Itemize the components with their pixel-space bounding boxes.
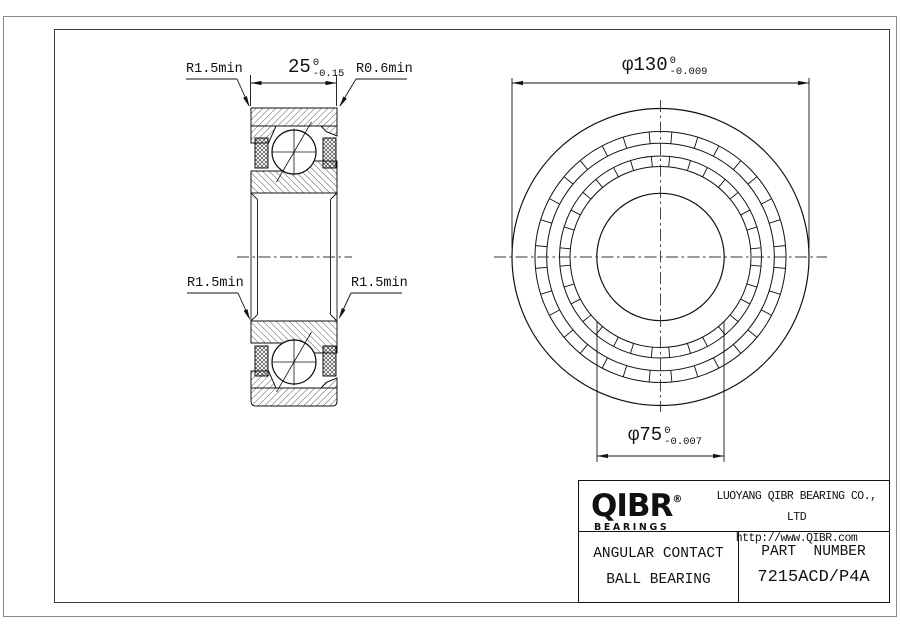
- radius-label-top-left: R1.5min: [186, 63, 243, 77]
- dimension-width: 25 0 -0.15: [288, 57, 344, 80]
- cage-bottom-right: [323, 346, 336, 376]
- cage-top-left: [255, 138, 268, 168]
- radius-label-mid-right: R1.5min: [351, 277, 408, 291]
- dimension-bore-value: φ75: [628, 425, 662, 445]
- front-view: [494, 100, 827, 412]
- dimension-bore-diameter: φ75 0 -0.007: [628, 425, 702, 448]
- radius-label-top-right: R0.6min: [356, 63, 413, 77]
- outer-ring-bottom: [251, 388, 337, 406]
- logo-wordmark: QIBR®: [591, 485, 682, 521]
- outer-ring-top: [251, 108, 337, 126]
- dimension-width-tolerance: 0 -0.15: [313, 57, 345, 80]
- part-number-value: 7215ACD/P4A: [738, 564, 889, 591]
- cage-top-right: [323, 138, 336, 168]
- outer-ring-bottom-right-step: [321, 378, 337, 388]
- title-block-header-row: QIBR® BEARINGS LUOYANG QIBR BEARING CO.,…: [579, 481, 889, 532]
- title-block: QIBR® BEARINGS LUOYANG QIBR BEARING CO.,…: [578, 480, 890, 603]
- part-number-cell: PART NUMBER 7215ACD/P4A: [738, 532, 889, 602]
- dimension-bore-tolerance: 0 -0.007: [664, 425, 702, 448]
- company-name: LUOYANG QIBR BEARING CO., LTD: [707, 486, 886, 528]
- registered-trademark-icon: ®: [672, 494, 682, 505]
- product-name-line1: ANGULAR CONTACT: [579, 541, 738, 567]
- outer-ring-top-right-step: [321, 126, 337, 136]
- dimension-od-value: φ130: [622, 55, 668, 75]
- dimension-od-tolerance: 0 -0.009: [670, 55, 708, 78]
- drawing-sheet: 25 0 -0.15 φ130 0 -0.009 φ75 0 -0.007 R1…: [0, 0, 900, 636]
- dimension-outer-diameter: φ130 0 -0.009: [622, 55, 707, 78]
- dimension-width-value: 25: [288, 57, 311, 77]
- product-name-line2: BALL BEARING: [579, 567, 738, 593]
- company-logo: QIBR® BEARINGS: [591, 485, 682, 533]
- section-view: [237, 108, 352, 406]
- outer-ring-bottom-left-shoulder: [251, 371, 276, 388]
- product-name-cell: ANGULAR CONTACT BALL BEARING: [579, 532, 738, 602]
- radius-label-mid-left: R1.5min: [187, 277, 244, 291]
- part-number-label: PART NUMBER: [738, 540, 889, 564]
